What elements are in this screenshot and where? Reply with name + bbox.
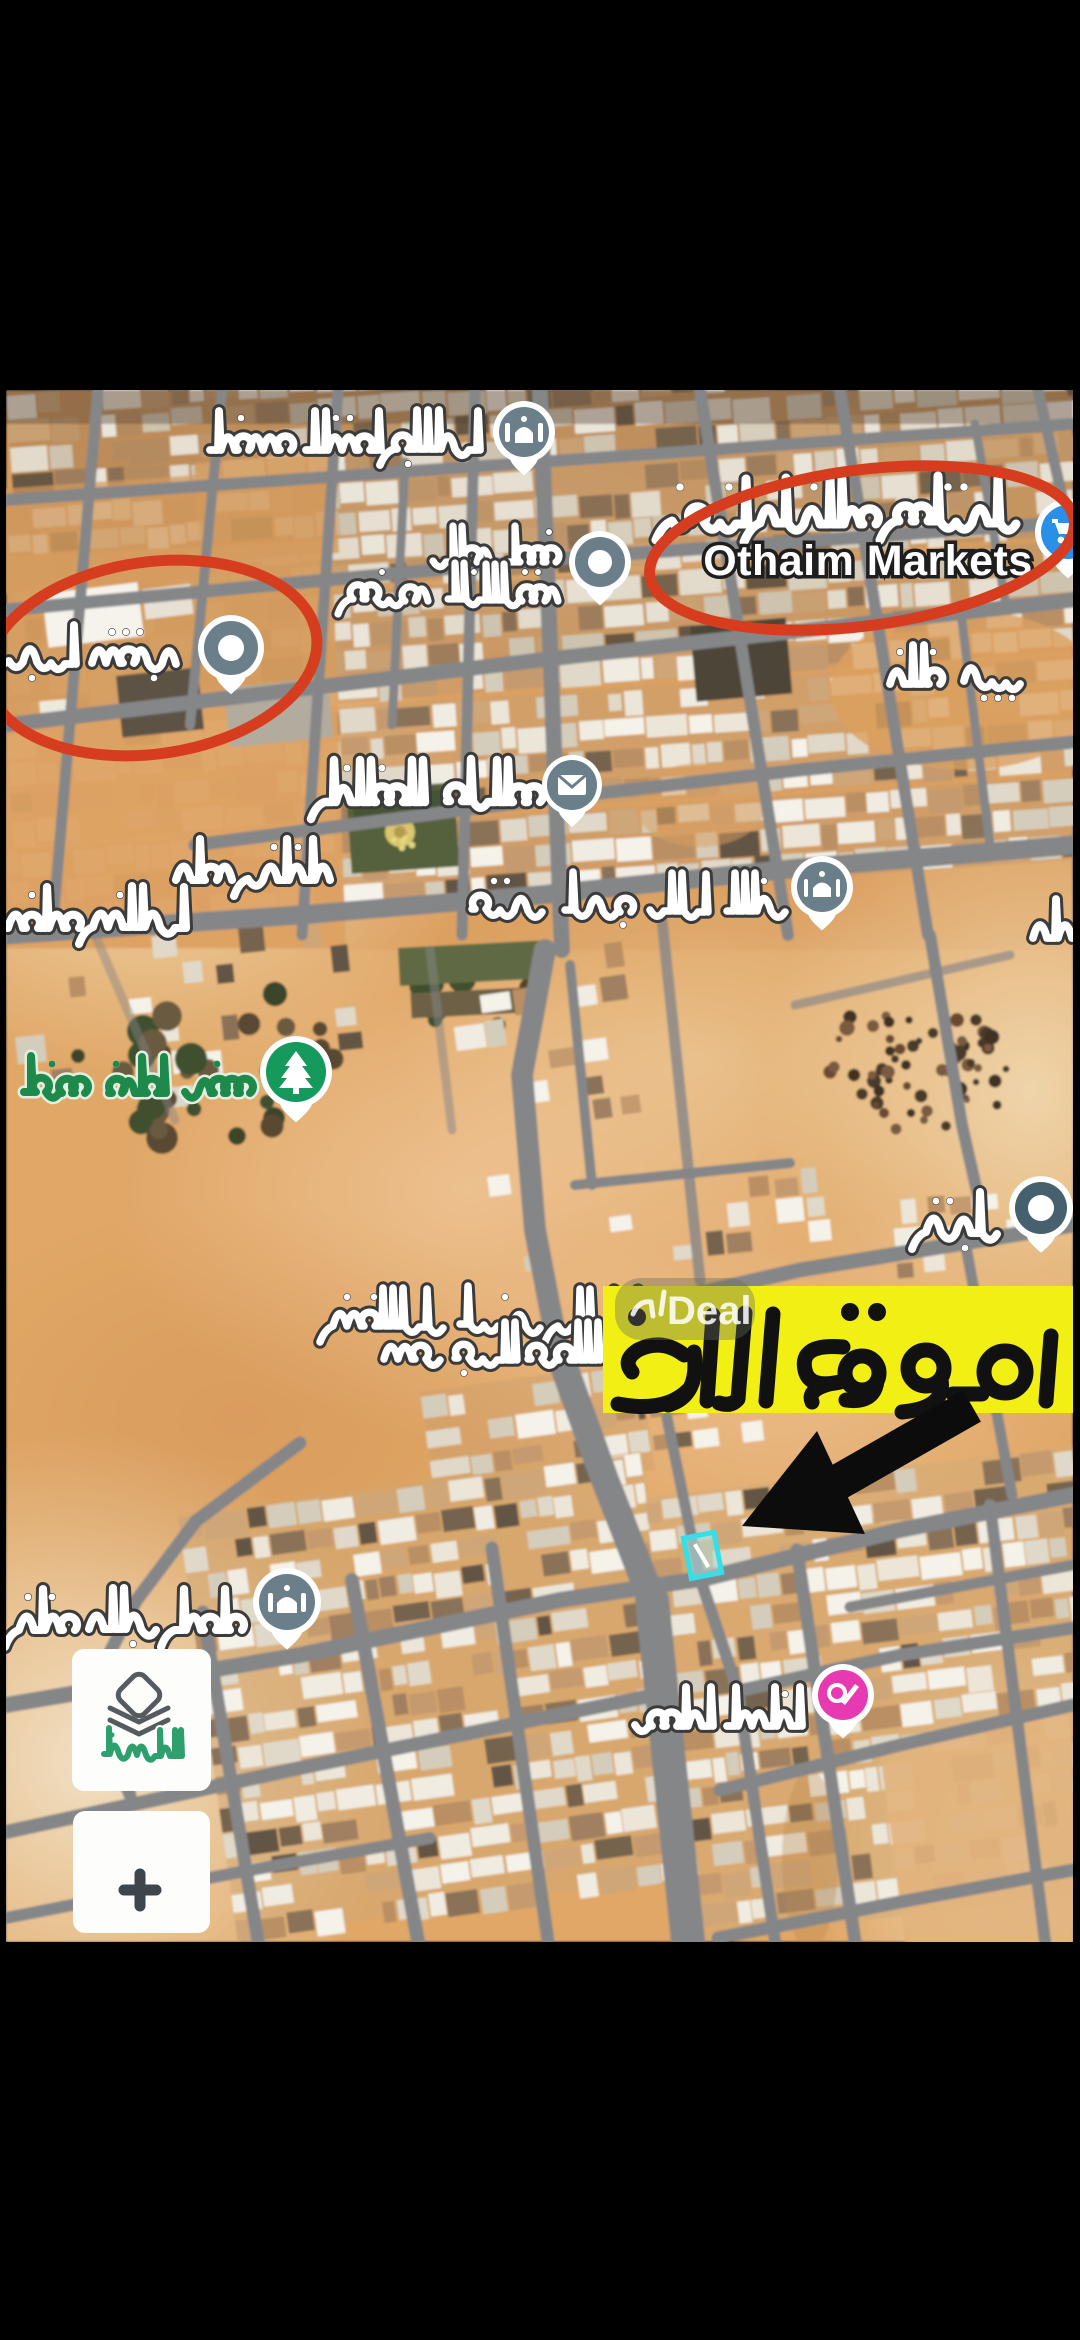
svg-text:Othaim Markets: Othaim Markets	[703, 537, 1033, 585]
svg-text:Deal: Deal	[667, 1289, 752, 1333]
